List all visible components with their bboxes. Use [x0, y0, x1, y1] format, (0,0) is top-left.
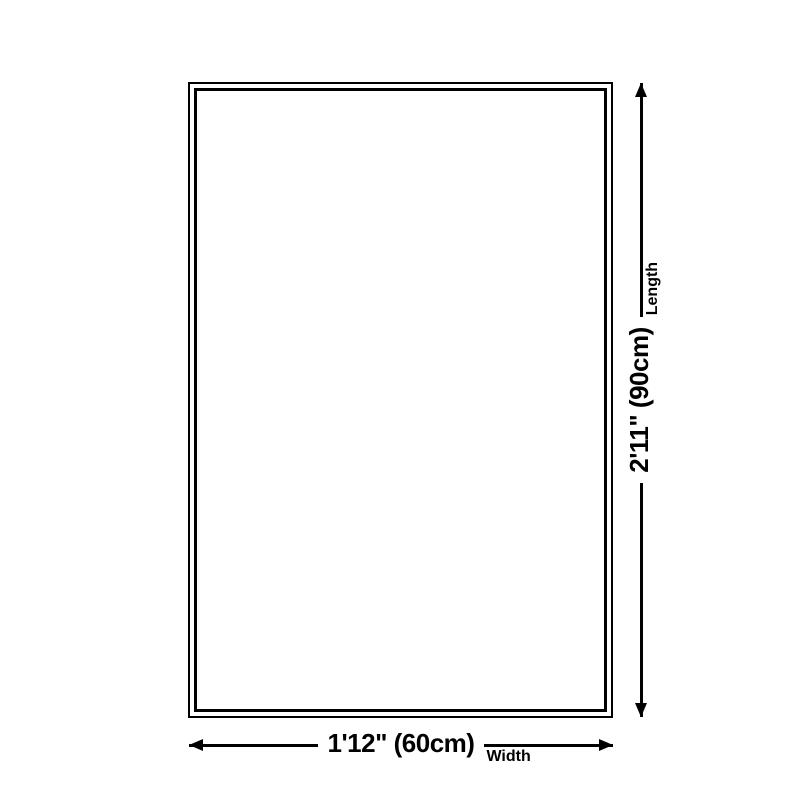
arrow-up-icon — [635, 83, 647, 97]
rug-inner-border — [194, 88, 607, 712]
arrow-right-icon — [599, 739, 613, 751]
length-value: 2'11" (90cm) — [626, 327, 652, 473]
length-label: Length — [645, 262, 661, 315]
width-dimension-line-right: Width — [484, 744, 613, 747]
arrow-down-icon — [635, 703, 647, 717]
length-dimension-line-bottom — [640, 483, 643, 717]
rug-outline — [188, 82, 613, 718]
width-value: 1'12" (60cm) — [328, 730, 475, 756]
diagram-canvas: 1'12" (60cm) Width 2'11" (90cm) Length — [0, 0, 800, 800]
width-label: Width — [486, 749, 530, 765]
arrow-left-icon — [189, 739, 203, 751]
length-dimension-line-top: Length — [640, 83, 643, 317]
width-dimension-line-left — [189, 744, 318, 747]
length-dimension: 2'11" (90cm) Length — [624, 83, 658, 717]
width-dimension: 1'12" (60cm) Width — [189, 728, 613, 762]
